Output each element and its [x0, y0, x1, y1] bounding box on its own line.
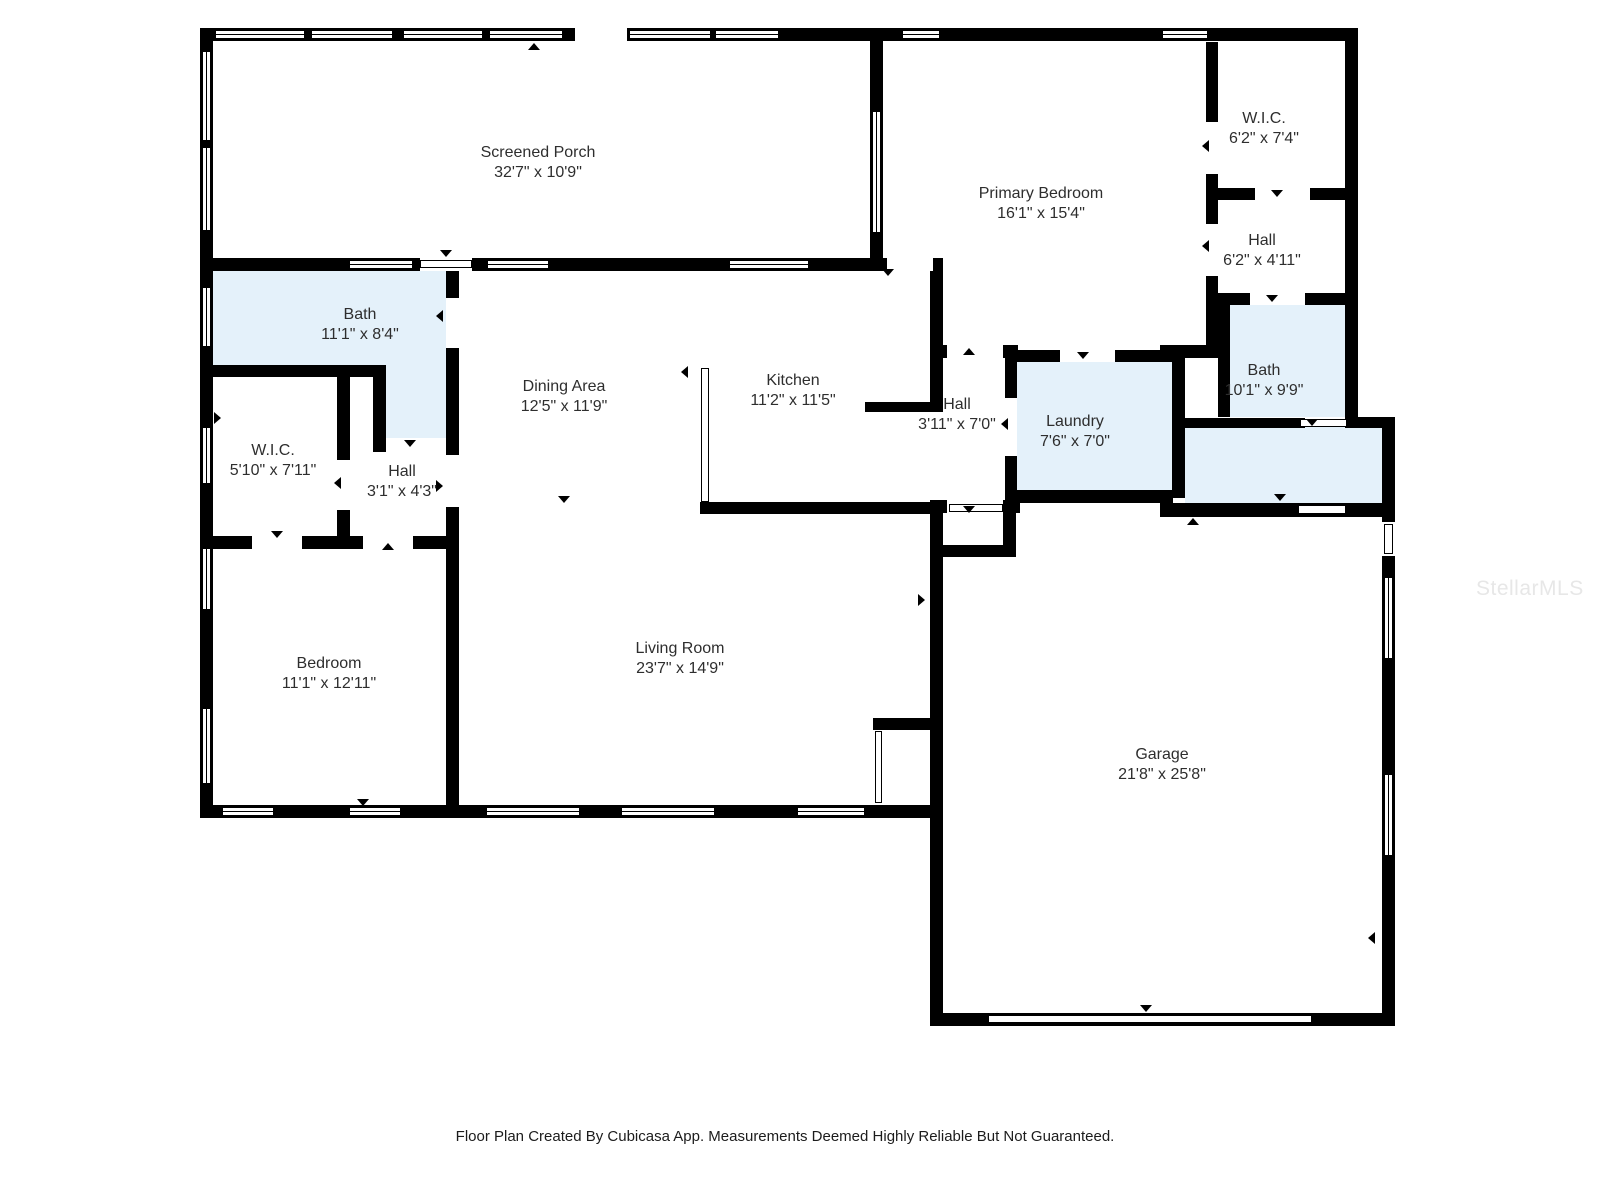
garage-door — [988, 1015, 1312, 1023]
door-opening — [446, 298, 459, 348]
window — [202, 709, 211, 783]
door-arrow — [558, 496, 570, 503]
wall — [373, 365, 386, 425]
room-name: Hall — [367, 462, 437, 482]
window — [903, 30, 939, 39]
door-arrow — [334, 477, 341, 489]
closet-door-line — [875, 731, 882, 803]
room-dims: 32'7" x 10'9" — [481, 163, 596, 183]
wall — [700, 502, 943, 514]
wall — [930, 258, 943, 412]
door-arrow — [382, 543, 394, 550]
room-dims: 5'10" x 7'11" — [230, 461, 317, 481]
room-name: W.I.C. — [1229, 109, 1299, 129]
wall — [200, 365, 380, 377]
window — [202, 52, 211, 140]
window — [1163, 30, 1207, 39]
door-arrow — [436, 310, 443, 322]
window — [202, 549, 211, 609]
wall — [200, 258, 943, 271]
room-dims: 16'1" x 15'4" — [979, 204, 1103, 224]
window — [622, 807, 714, 816]
window — [872, 112, 881, 232]
wall — [1345, 417, 1395, 428]
window — [798, 807, 864, 816]
door-arrow — [1140, 1005, 1152, 1012]
room-label-dining-area: Dining Area 12'5" x 11'9" — [521, 377, 608, 417]
bath-left-floor — [386, 271, 446, 438]
room-label-primary-bedroom: Primary Bedroom 16'1" x 15'4" — [979, 184, 1103, 224]
door-arrow — [963, 506, 975, 513]
door-arrow — [436, 480, 443, 492]
room-dims: 23'7" x 14'9" — [636, 659, 725, 679]
wall — [1172, 350, 1185, 498]
door-arrow — [1266, 295, 1278, 302]
room-label-hall-right: Hall 6'2" x 4'11" — [1223, 231, 1301, 271]
door-arrow — [918, 594, 925, 606]
room-label-bath-left: Bath 11'1" x 8'4" — [321, 305, 399, 345]
wall — [446, 266, 459, 818]
room-label-screened-porch: Screened Porch 32'7" x 10'9" — [481, 143, 596, 183]
room-name: Kitchen — [750, 371, 835, 391]
door-opening — [446, 455, 459, 507]
window — [223, 807, 273, 816]
door-leaf — [1384, 524, 1393, 554]
window — [216, 30, 304, 39]
room-name: Garage — [1118, 745, 1206, 765]
door-arrow — [440, 250, 452, 257]
room-name: Hall — [918, 395, 996, 415]
window — [1384, 775, 1393, 855]
room-label-wic-right: W.I.C. 6'2" x 7'4" — [1229, 109, 1299, 149]
room-label-bath-right: Bath 10'1" x 9'9" — [1225, 361, 1304, 401]
door-arrow — [357, 799, 369, 806]
wall — [373, 425, 386, 452]
door-arrow — [1202, 240, 1209, 252]
room-label-hall-left: Hall 3'1" x 4'3" — [367, 462, 437, 502]
room-label-bedroom: Bedroom 11'1" x 12'11" — [282, 654, 376, 694]
room-label-garage: Garage 21'8" x 25'8" — [1118, 745, 1206, 785]
room-dims: 6'2" x 4'11" — [1223, 251, 1301, 271]
room-name: Dining Area — [521, 377, 608, 397]
window — [488, 260, 548, 269]
room-label-hall-mid: Hall 3'11" x 7'0" — [918, 395, 996, 435]
door-leaf — [1298, 505, 1346, 514]
door-opening — [575, 28, 627, 41]
door-opening — [947, 345, 1003, 358]
room-dims: 6'2" x 7'4" — [1229, 129, 1299, 149]
room-dims: 11'1" x 12'11" — [282, 674, 376, 694]
window — [730, 260, 808, 269]
footer-disclaimer: Floor Plan Created By Cubicasa App. Meas… — [456, 1128, 1115, 1145]
room-dims: 3'1" x 4'3" — [367, 482, 437, 502]
room-dims: 12'5" x 11'9" — [521, 397, 608, 417]
room-dims: 11'2" x 11'5" — [750, 391, 835, 411]
room-dims: 10'1" x 9'9" — [1225, 381, 1304, 401]
door-arrow — [271, 531, 283, 538]
room-name: Screened Porch — [481, 143, 596, 163]
room-dims: 21'8" x 25'8" — [1118, 765, 1206, 785]
room-dims: 3'11" x 7'0" — [918, 415, 996, 435]
room-label-living-room: Living Room 23'7" x 14'9" — [636, 639, 725, 679]
wall — [200, 28, 213, 818]
window — [202, 288, 211, 346]
door-arrow — [1368, 932, 1375, 944]
door-arrow — [882, 269, 894, 276]
room-name: Laundry — [1040, 412, 1110, 432]
wall — [1206, 42, 1218, 345]
door-arrow — [404, 440, 416, 447]
room-name: Hall — [1223, 231, 1301, 251]
door-leaf — [420, 260, 472, 268]
window — [312, 30, 392, 39]
room-name: Bedroom — [282, 654, 376, 674]
wall — [1160, 503, 1395, 517]
wall — [1005, 490, 1173, 503]
bath-right-floor — [1185, 427, 1383, 503]
window — [487, 807, 579, 816]
window — [350, 260, 412, 269]
door-arrow — [528, 43, 540, 50]
door-arrow — [1271, 190, 1283, 197]
wall — [337, 377, 350, 536]
door-arrow — [963, 348, 975, 355]
window — [1384, 578, 1393, 658]
stellar-mls-watermark: StellarMLS — [1476, 577, 1584, 601]
room-name: Bath — [321, 305, 399, 325]
door-arrow — [1187, 518, 1199, 525]
door-arrow — [1001, 418, 1008, 430]
wall — [941, 545, 1016, 557]
window — [202, 148, 211, 230]
room-name: W.I.C. — [230, 441, 317, 461]
window — [490, 30, 562, 39]
room-label-laundry: Laundry 7'6" x 7'0" — [1040, 412, 1110, 452]
kitchen-counter-line — [701, 368, 709, 502]
wall — [873, 718, 943, 730]
door-arrow — [681, 366, 688, 378]
room-name: Primary Bedroom — [979, 184, 1103, 204]
room-dims: 7'6" x 7'0" — [1040, 432, 1110, 452]
wall — [1173, 418, 1305, 428]
room-dims: 11'1" x 8'4" — [321, 325, 399, 345]
door-arrow — [214, 412, 221, 424]
door-arrow — [1202, 140, 1209, 152]
door-leaf — [949, 504, 1003, 512]
window — [630, 30, 710, 39]
wall — [1345, 28, 1358, 427]
floor-plan: Screened Porch 32'7" x 10'9" Primary Bed… — [0, 0, 1600, 1200]
door-arrow — [1306, 419, 1318, 426]
window — [350, 807, 400, 816]
door-arrow — [1077, 352, 1089, 359]
window — [202, 428, 211, 483]
wall — [200, 536, 459, 549]
room-label-wic-left: W.I.C. 5'10" x 7'11" — [230, 441, 317, 481]
room-name: Bath — [1225, 361, 1304, 381]
room-label-kitchen: Kitchen 11'2" x 11'5" — [750, 371, 835, 411]
wall — [930, 505, 943, 1026]
window — [404, 30, 482, 39]
room-name: Living Room — [636, 639, 725, 659]
door-arrow — [1274, 494, 1286, 501]
window — [716, 30, 778, 39]
